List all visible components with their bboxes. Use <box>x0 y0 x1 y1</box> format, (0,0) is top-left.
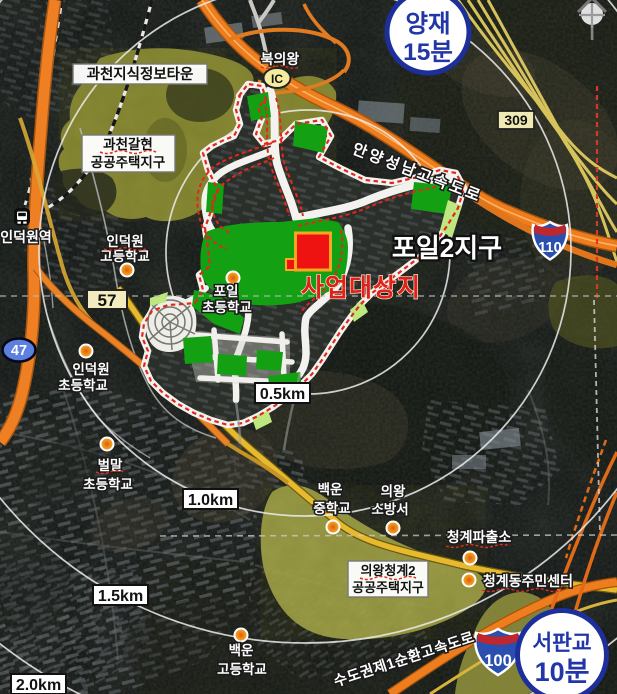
svg-text:309: 309 <box>504 112 528 128</box>
svg-text:의왕: 의왕 <box>381 483 406 499</box>
svg-text:초등학교: 초등학교 <box>202 300 252 315</box>
svg-text:57: 57 <box>98 291 117 310</box>
svg-text:포일2지구: 포일2지구 <box>392 233 502 263</box>
svg-text:북의왕: 북의왕 <box>261 51 300 67</box>
svg-text:초등학교: 초등학교 <box>58 378 108 393</box>
svg-text:47: 47 <box>11 343 27 359</box>
svg-text:백운: 백운 <box>318 482 343 497</box>
svg-text:인덕원역: 인덕원역 <box>0 229 52 245</box>
svg-text:0.5km: 0.5km <box>260 386 305 403</box>
svg-text:인덕원: 인덕원 <box>106 233 143 249</box>
svg-text:IC: IC <box>271 72 283 86</box>
svg-text:인덕원: 인덕원 <box>72 361 109 377</box>
svg-text:110: 110 <box>538 240 561 256</box>
svg-text:의왕청계2: 의왕청계2 <box>360 563 415 578</box>
svg-text:15분: 15분 <box>403 39 453 66</box>
svg-text:사업대상지: 사업대상지 <box>301 274 421 302</box>
svg-text:양재: 양재 <box>405 10 450 38</box>
svg-text:과천지식정보타운: 과천지식정보타운 <box>87 65 194 83</box>
svg-text:1.0km: 1.0km <box>188 492 233 509</box>
svg-text:1.5km: 1.5km <box>98 588 143 605</box>
svg-text:10분: 10분 <box>535 657 590 687</box>
svg-text:초등학교: 초등학교 <box>83 477 133 492</box>
svg-text:고등학교: 고등학교 <box>217 662 267 677</box>
svg-text:2.0km: 2.0km <box>16 677 61 694</box>
svg-text:공공주택지구: 공공주택지구 <box>352 580 424 595</box>
svg-text:청계동주민센터: 청계동주민센터 <box>483 573 573 589</box>
svg-text:고등학교: 고등학교 <box>100 249 150 264</box>
svg-text:청계파출소: 청계파출소 <box>447 529 512 545</box>
svg-text:포일: 포일 <box>214 284 239 299</box>
svg-text:중학교: 중학교 <box>313 501 350 516</box>
svg-text:소방서: 소방서 <box>371 501 408 517</box>
svg-text:서판교: 서판교 <box>532 631 592 655</box>
svg-text:백운: 백운 <box>229 643 254 658</box>
svg-text:100: 100 <box>484 652 512 670</box>
svg-text:과천갈현: 과천갈현 <box>103 137 153 152</box>
svg-text:공공주택지구: 공공주택지구 <box>91 154 166 170</box>
svg-text:벌말: 벌말 <box>98 457 123 473</box>
